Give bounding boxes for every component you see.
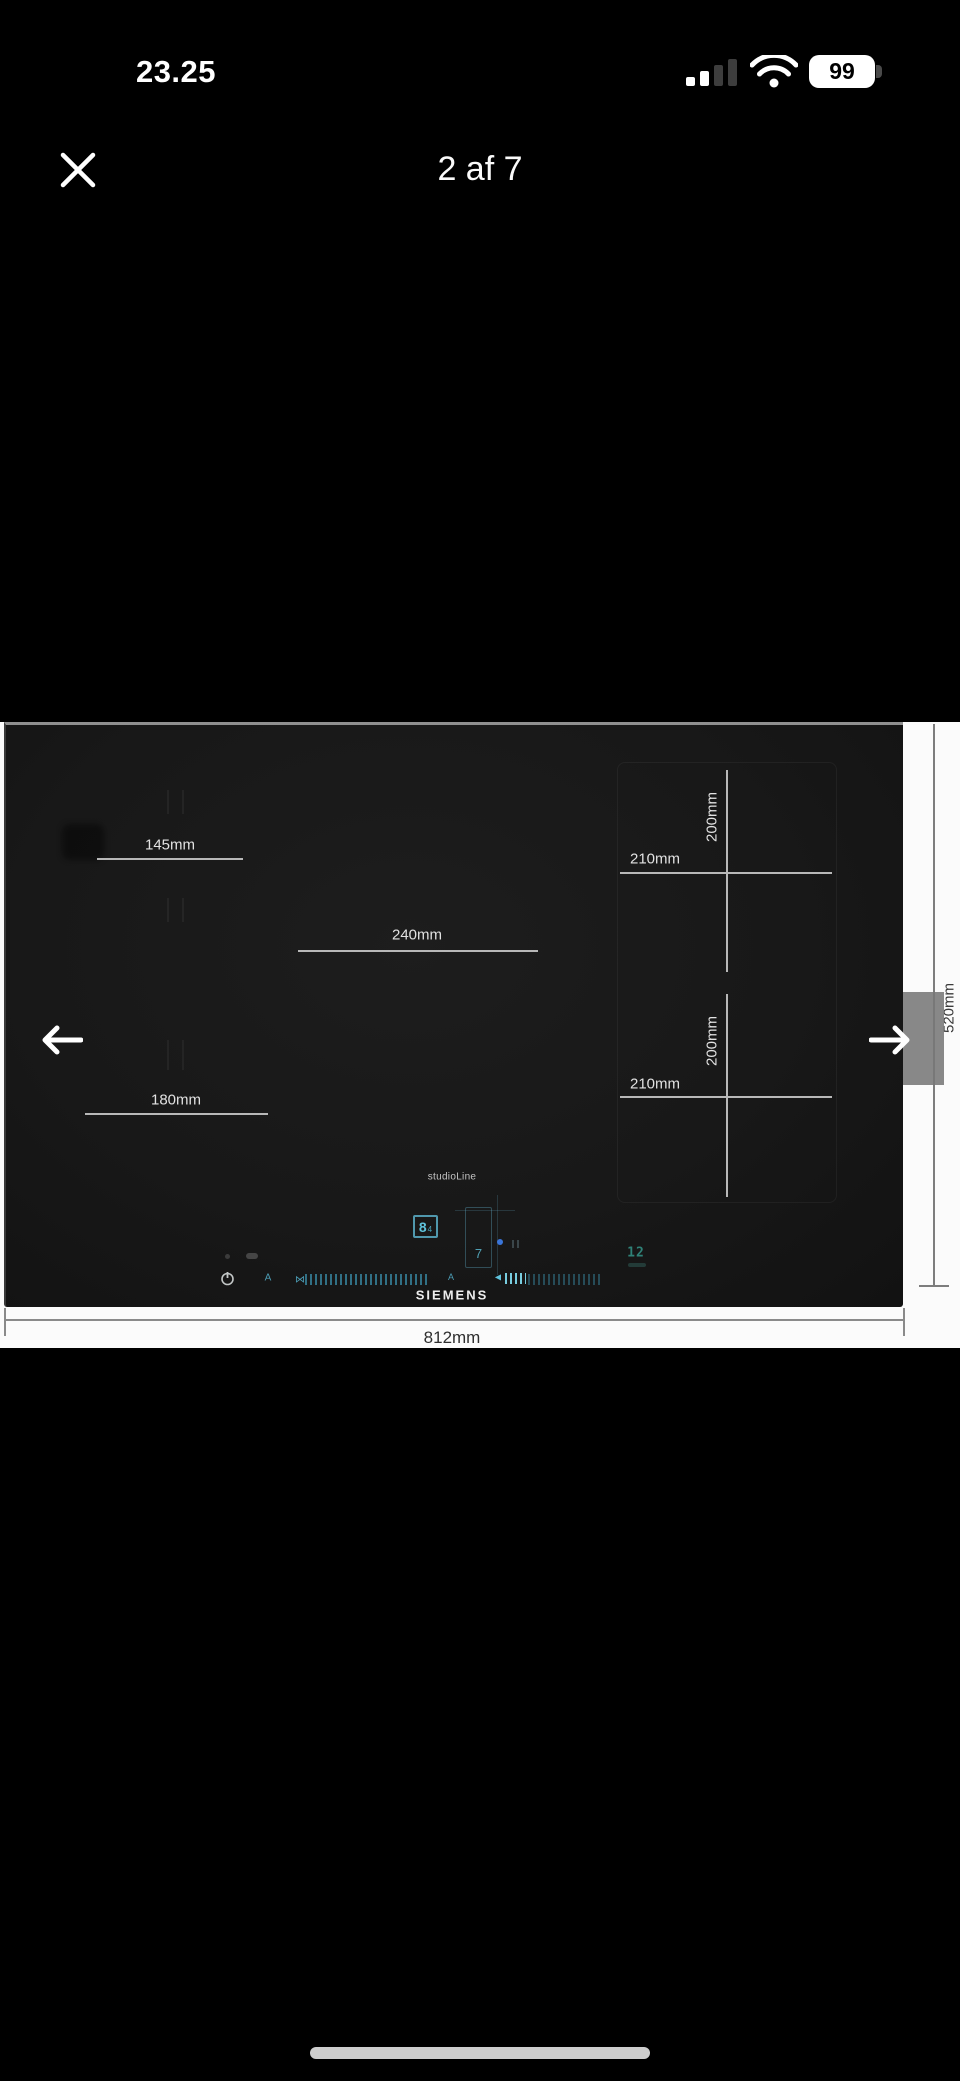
next-image-button[interactable] <box>858 1008 922 1072</box>
auto-function-icon: A <box>448 1272 454 1282</box>
dimension-tick-520 <box>919 1285 949 1287</box>
dimension-label-210-front: 210mm <box>630 1076 680 1093</box>
power-icon <box>220 1271 235 1286</box>
battery-percent: 99 <box>829 58 855 85</box>
brand-logo: SIEMENS <box>416 1288 489 1303</box>
cellular-signal-icon <box>686 56 738 86</box>
dimension-tick-812-right <box>903 1308 905 1336</box>
dimension-tick-812-left <box>4 1308 6 1336</box>
page-indicator: 2 af 7 <box>0 150 960 189</box>
battery-indicator: 99 <box>809 55 875 88</box>
faint-display-segment <box>517 1240 519 1248</box>
status-bar-clock: 23.25 <box>96 54 256 90</box>
dimension-label-145: 145mm <box>145 837 195 854</box>
battery-nub <box>876 65 882 78</box>
dimension-label-210-rear: 210mm <box>630 851 680 868</box>
indicator-dot <box>497 1239 503 1245</box>
dimension-line-240 <box>298 950 538 952</box>
sensor-dot <box>225 1254 230 1259</box>
dimension-label-200-rear: 200mm <box>704 792 721 842</box>
dimension-line-145 <box>97 858 243 860</box>
dimension-label-200-front: 200mm <box>704 1016 721 1066</box>
zone-mark <box>182 790 184 814</box>
zone-mark <box>182 1040 184 1070</box>
arrow-left-icon <box>41 1025 83 1055</box>
dimension-line-180 <box>85 1113 268 1115</box>
dimension-label-812: 812mm <box>424 1328 481 1348</box>
image-viewer-screen: 23.25 99 2 af 7 145mm 240mm 180mm 210mm <box>0 0 960 2081</box>
power-slider-active <box>505 1273 526 1284</box>
faint-display-segment <box>512 1240 514 1248</box>
zone-mark <box>167 898 169 922</box>
dimension-line-200-front <box>726 994 728 1197</box>
move-zone-icon: ⋈ <box>295 1275 305 1286</box>
timer-unit-mark <box>628 1263 646 1267</box>
select-zone-icon: ◀ <box>495 1273 501 1282</box>
zone-display-value: 7 <box>475 1246 482 1261</box>
dimension-line-200-rear <box>726 770 728 972</box>
previous-image-button[interactable] <box>30 1008 94 1072</box>
dimension-label-240: 240mm <box>392 927 442 944</box>
zone-display: 7 <box>465 1207 492 1268</box>
power-level-display: 84 <box>413 1215 438 1238</box>
wifi-icon <box>750 55 798 88</box>
power-level-value: 8 <box>419 1219 427 1235</box>
home-indicator[interactable] <box>310 2047 650 2059</box>
studioline-label: studioLine <box>428 1172 477 1183</box>
dimension-label-180: 180mm <box>151 1092 201 1109</box>
power-slider-right <box>528 1274 600 1285</box>
sensor-dot <box>246 1253 258 1259</box>
zone-mark <box>167 1040 169 1070</box>
power-slider <box>305 1274 427 1285</box>
timer-display: 12 <box>627 1246 645 1261</box>
power-level-sub: 4 <box>428 1225 432 1234</box>
surface-print-mark <box>62 824 104 860</box>
child-lock-icon: A <box>265 1273 272 1284</box>
dimension-line-812 <box>4 1319 905 1321</box>
display-guide-line-v <box>497 1195 498 1275</box>
zone-mark <box>167 790 169 814</box>
zone-mark <box>182 898 184 922</box>
arrow-right-icon <box>869 1025 911 1055</box>
display-guide-line-h <box>455 1210 515 1211</box>
